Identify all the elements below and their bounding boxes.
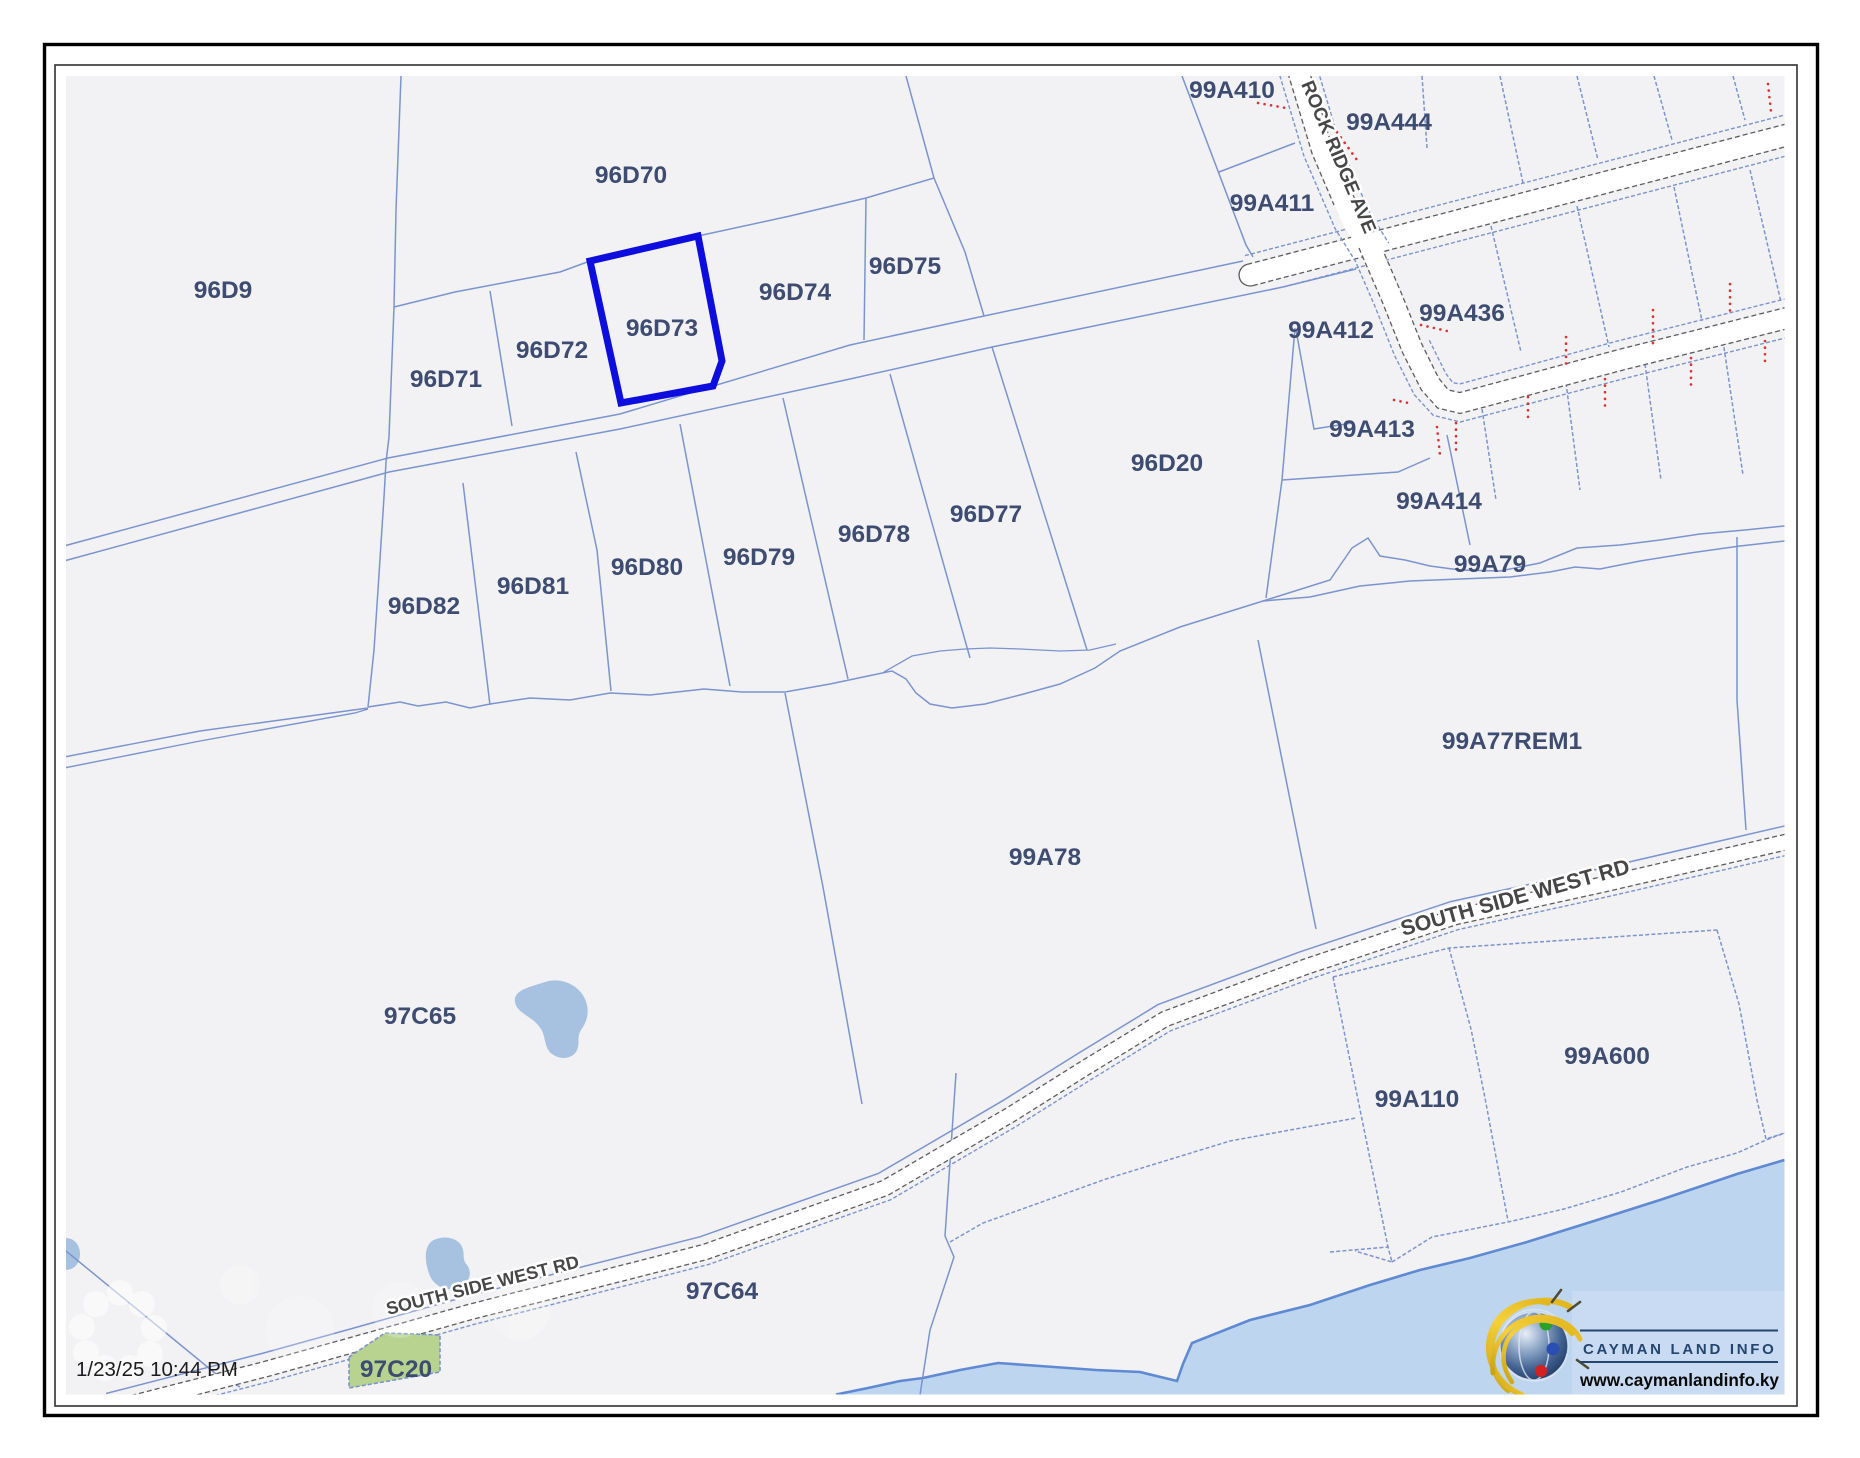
svg-text:99A444: 99A444 <box>1346 109 1432 136</box>
svg-text:96D77: 96D77 <box>950 501 1022 528</box>
svg-text:96D74: 96D74 <box>759 279 832 306</box>
svg-text:96D75: 96D75 <box>869 253 941 280</box>
svg-text:96D20: 96D20 <box>1131 450 1203 477</box>
svg-text:96D9: 96D9 <box>194 277 253 304</box>
svg-text:96D70: 96D70 <box>595 162 667 189</box>
svg-text:99A411: 99A411 <box>1230 190 1314 217</box>
svg-text:99A79: 99A79 <box>1454 551 1526 578</box>
svg-text:99A412: 99A412 <box>1288 317 1374 344</box>
svg-text:99A78: 99A78 <box>1009 844 1081 871</box>
svg-text:96D82: 96D82 <box>388 593 460 620</box>
svg-text:96D71: 96D71 <box>410 366 482 393</box>
svg-text:96D72: 96D72 <box>516 337 588 364</box>
svg-text:99A413: 99A413 <box>1329 416 1415 443</box>
svg-text:CAYMAN LAND INFO: CAYMAN LAND INFO <box>1583 1341 1776 1358</box>
svg-text:99A414: 99A414 <box>1396 488 1482 515</box>
svg-text:99A77REM1: 99A77REM1 <box>1442 728 1582 755</box>
svg-text:99A436: 99A436 <box>1419 300 1505 327</box>
svg-text:96D73: 96D73 <box>626 315 698 342</box>
svg-text:96D78: 96D78 <box>838 521 910 548</box>
svg-text:99A600: 99A600 <box>1564 1043 1650 1070</box>
svg-text:96D79: 96D79 <box>723 544 795 571</box>
svg-text:1/23/25 10:44 PM: 1/23/25 10:44 PM <box>76 1358 238 1381</box>
svg-text:97C65: 97C65 <box>384 1003 456 1030</box>
svg-text:99A410: 99A410 <box>1189 77 1275 104</box>
svg-text:96D81: 96D81 <box>497 573 569 600</box>
svg-text:www.caymanlandinfo.ky: www.caymanlandinfo.ky <box>1579 1370 1779 1390</box>
svg-text:97C20: 97C20 <box>360 1356 432 1383</box>
svg-text:96D80: 96D80 <box>611 554 683 581</box>
svg-text:99A110: 99A110 <box>1375 1086 1459 1113</box>
svg-text:97C64: 97C64 <box>686 1278 759 1305</box>
